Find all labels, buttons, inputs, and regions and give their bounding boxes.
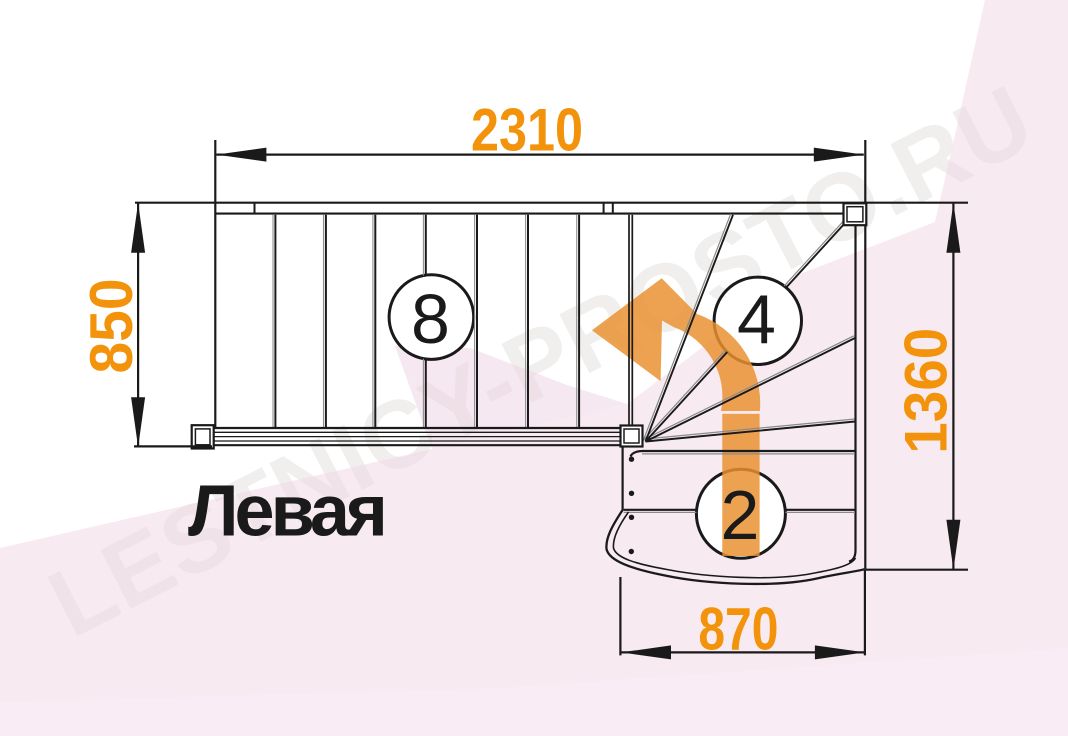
svg-text:Левая: Левая: [188, 472, 384, 552]
svg-text:1360: 1360: [893, 328, 960, 454]
svg-text:8: 8: [411, 280, 450, 358]
svg-text:2: 2: [721, 476, 760, 554]
svg-text:4: 4: [737, 281, 776, 359]
svg-text:850: 850: [78, 279, 145, 374]
svg-text:870: 870: [698, 596, 778, 663]
svg-text:2310: 2310: [471, 97, 583, 164]
